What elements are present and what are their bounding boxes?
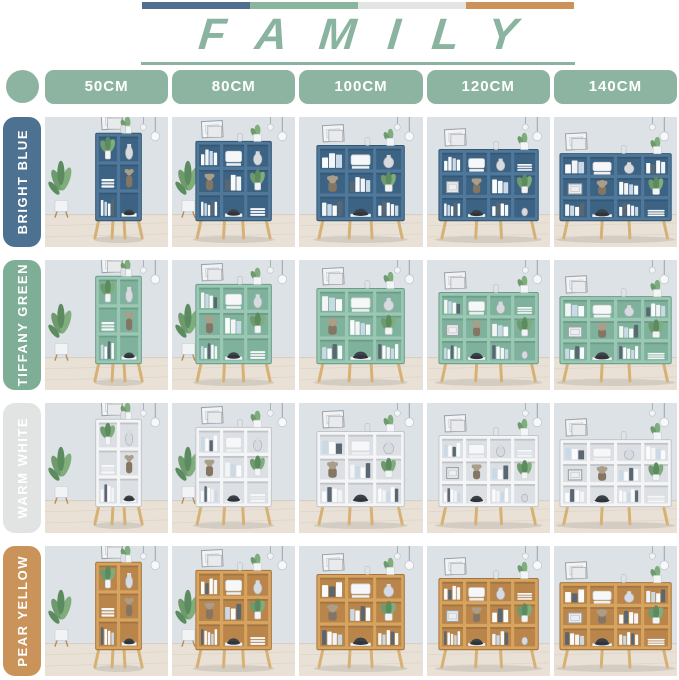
shelf-top-vase-icon bbox=[121, 554, 126, 562]
product-photo-bright-blue-120cm bbox=[427, 117, 550, 247]
shelf-top-vase-icon bbox=[493, 284, 498, 292]
product-photo-tiffany-green-50cm bbox=[45, 260, 168, 390]
color-bar bbox=[142, 2, 574, 9]
shelf-leg bbox=[243, 505, 244, 523]
column-header-100cm: 100CM bbox=[299, 70, 422, 104]
shelf-top-vase-icon bbox=[238, 419, 243, 427]
column-header-50cm: 50CM bbox=[45, 70, 168, 104]
shelf-leg bbox=[601, 219, 602, 237]
shelf-leg bbox=[371, 362, 372, 380]
shelf-top-vase-icon bbox=[365, 423, 370, 431]
shelf-leg bbox=[124, 649, 125, 667]
shelf-top-vase-icon bbox=[365, 137, 370, 145]
column-header-80cm: 80CM bbox=[172, 70, 295, 104]
shelf-leg bbox=[124, 362, 125, 380]
shelf-top-vase-icon bbox=[238, 562, 243, 570]
product-photo-bright-blue-80cm bbox=[172, 117, 295, 247]
comparison-grid: 50CM80CM100CM120CM140CMBRIGHT BLUE bbox=[3, 70, 677, 677]
shelf-leg bbox=[243, 649, 244, 667]
shelf-leg bbox=[601, 505, 602, 523]
shelf-top-vase-icon bbox=[121, 125, 126, 133]
shelf-leg bbox=[500, 219, 501, 237]
shelf-leg bbox=[243, 219, 244, 237]
shelf-leg bbox=[601, 362, 602, 380]
shelf-top-vase-icon bbox=[238, 276, 243, 284]
shelf-top-vase-icon bbox=[493, 141, 498, 149]
shelf-leg bbox=[601, 649, 602, 667]
product-photo-warm-white-80cm bbox=[172, 403, 295, 533]
column-header-120cm: 120CM bbox=[427, 70, 550, 104]
shelf-leg bbox=[124, 219, 125, 237]
product-photo-pear-yellow-120cm bbox=[427, 546, 550, 676]
product-photo-warm-white-120cm bbox=[427, 403, 550, 533]
product-photo-tiffany-green-140cm bbox=[554, 260, 677, 390]
shelf-leg bbox=[475, 219, 476, 237]
product-photo-bright-blue-140cm bbox=[554, 117, 677, 247]
color-bar-segment-3 bbox=[358, 2, 466, 9]
product-photo-pear-yellow-100cm bbox=[299, 546, 422, 676]
shelf-leg bbox=[224, 219, 225, 237]
product-photo-tiffany-green-80cm bbox=[172, 260, 295, 390]
shelf-top-vase-icon bbox=[493, 570, 498, 578]
product-photo-pear-yellow-80cm bbox=[172, 546, 295, 676]
shelf-top-vase-icon bbox=[621, 574, 626, 582]
column-header-140cm: 140CM bbox=[554, 70, 677, 104]
shelf-top-vase-icon bbox=[121, 268, 126, 276]
shelf-leg bbox=[475, 505, 476, 523]
product-photo-warm-white-50cm bbox=[45, 403, 168, 533]
shelf-leg bbox=[500, 649, 501, 667]
shelf-leg bbox=[243, 362, 244, 380]
shelf-leg bbox=[371, 219, 372, 237]
shelf-leg bbox=[629, 362, 630, 380]
shelf-leg bbox=[124, 505, 125, 523]
shelf-leg bbox=[475, 649, 476, 667]
shelf-leg bbox=[371, 505, 372, 523]
row-label-bright-blue: BRIGHT BLUE bbox=[3, 117, 41, 247]
color-bar-segment-1 bbox=[142, 2, 250, 9]
shelf-leg bbox=[224, 505, 225, 523]
color-bar-segment-2 bbox=[250, 2, 358, 9]
shelf-top-vase-icon bbox=[621, 431, 626, 439]
row-label-tiffany-green: TIFFANY GREEN bbox=[3, 260, 41, 390]
product-photo-bright-blue-100cm bbox=[299, 117, 422, 247]
row-label-text: BRIGHT BLUE bbox=[15, 129, 30, 234]
shelf-leg bbox=[629, 505, 630, 523]
shelf-top-vase-icon bbox=[121, 411, 126, 419]
shelf-leg bbox=[350, 649, 351, 667]
shelf-leg bbox=[112, 649, 113, 667]
row-label-pear-yellow: PEAR YELLOW bbox=[3, 546, 41, 676]
shelf-leg bbox=[500, 362, 501, 380]
shelf-leg bbox=[629, 649, 630, 667]
shelf-leg bbox=[350, 505, 351, 523]
shelf-leg bbox=[475, 362, 476, 380]
shelf-leg bbox=[224, 362, 225, 380]
shelf-top-vase-icon bbox=[621, 145, 626, 153]
shelf-top-vase-icon bbox=[365, 280, 370, 288]
shelf-leg bbox=[629, 219, 630, 237]
shelf-top-vase-icon bbox=[365, 566, 370, 574]
shelf-leg bbox=[224, 649, 225, 667]
color-bar-segment-4 bbox=[466, 2, 574, 9]
product-photo-tiffany-green-100cm bbox=[299, 260, 422, 390]
shelf-leg bbox=[350, 219, 351, 237]
shelf-top-vase-icon bbox=[493, 427, 498, 435]
shelf-leg bbox=[500, 505, 501, 523]
shelf-leg bbox=[112, 219, 113, 237]
title-underline bbox=[141, 62, 575, 65]
legend-circle bbox=[6, 70, 39, 103]
shelf-leg bbox=[350, 362, 351, 380]
row-label-warm-white: WARM WHITE bbox=[3, 403, 41, 533]
row-label-text: WARM WHITE bbox=[15, 417, 30, 519]
shelf-leg bbox=[112, 362, 113, 380]
product-photo-pear-yellow-140cm bbox=[554, 546, 677, 676]
shelf-leg bbox=[112, 505, 113, 523]
row-label-text: TIFFANY GREEN bbox=[15, 263, 30, 386]
product-photo-warm-white-140cm bbox=[554, 403, 677, 533]
product-photo-tiffany-green-120cm bbox=[427, 260, 550, 390]
product-photo-warm-white-100cm bbox=[299, 403, 422, 533]
shelf-top-vase-icon bbox=[238, 133, 243, 141]
page-title: FAMILY bbox=[139, 9, 576, 61]
header: FAMILY bbox=[0, 0, 679, 65]
product-infographic: FAMILY 50CM80CM100CM120CM140CMBRIGHT BLU… bbox=[0, 0, 679, 680]
row-label-text: PEAR YELLOW bbox=[15, 555, 30, 667]
shelf-leg bbox=[371, 649, 372, 667]
product-photo-bright-blue-50cm bbox=[45, 117, 168, 247]
product-photo-pear-yellow-50cm bbox=[45, 546, 168, 676]
shelf-top-vase-icon bbox=[621, 288, 626, 296]
